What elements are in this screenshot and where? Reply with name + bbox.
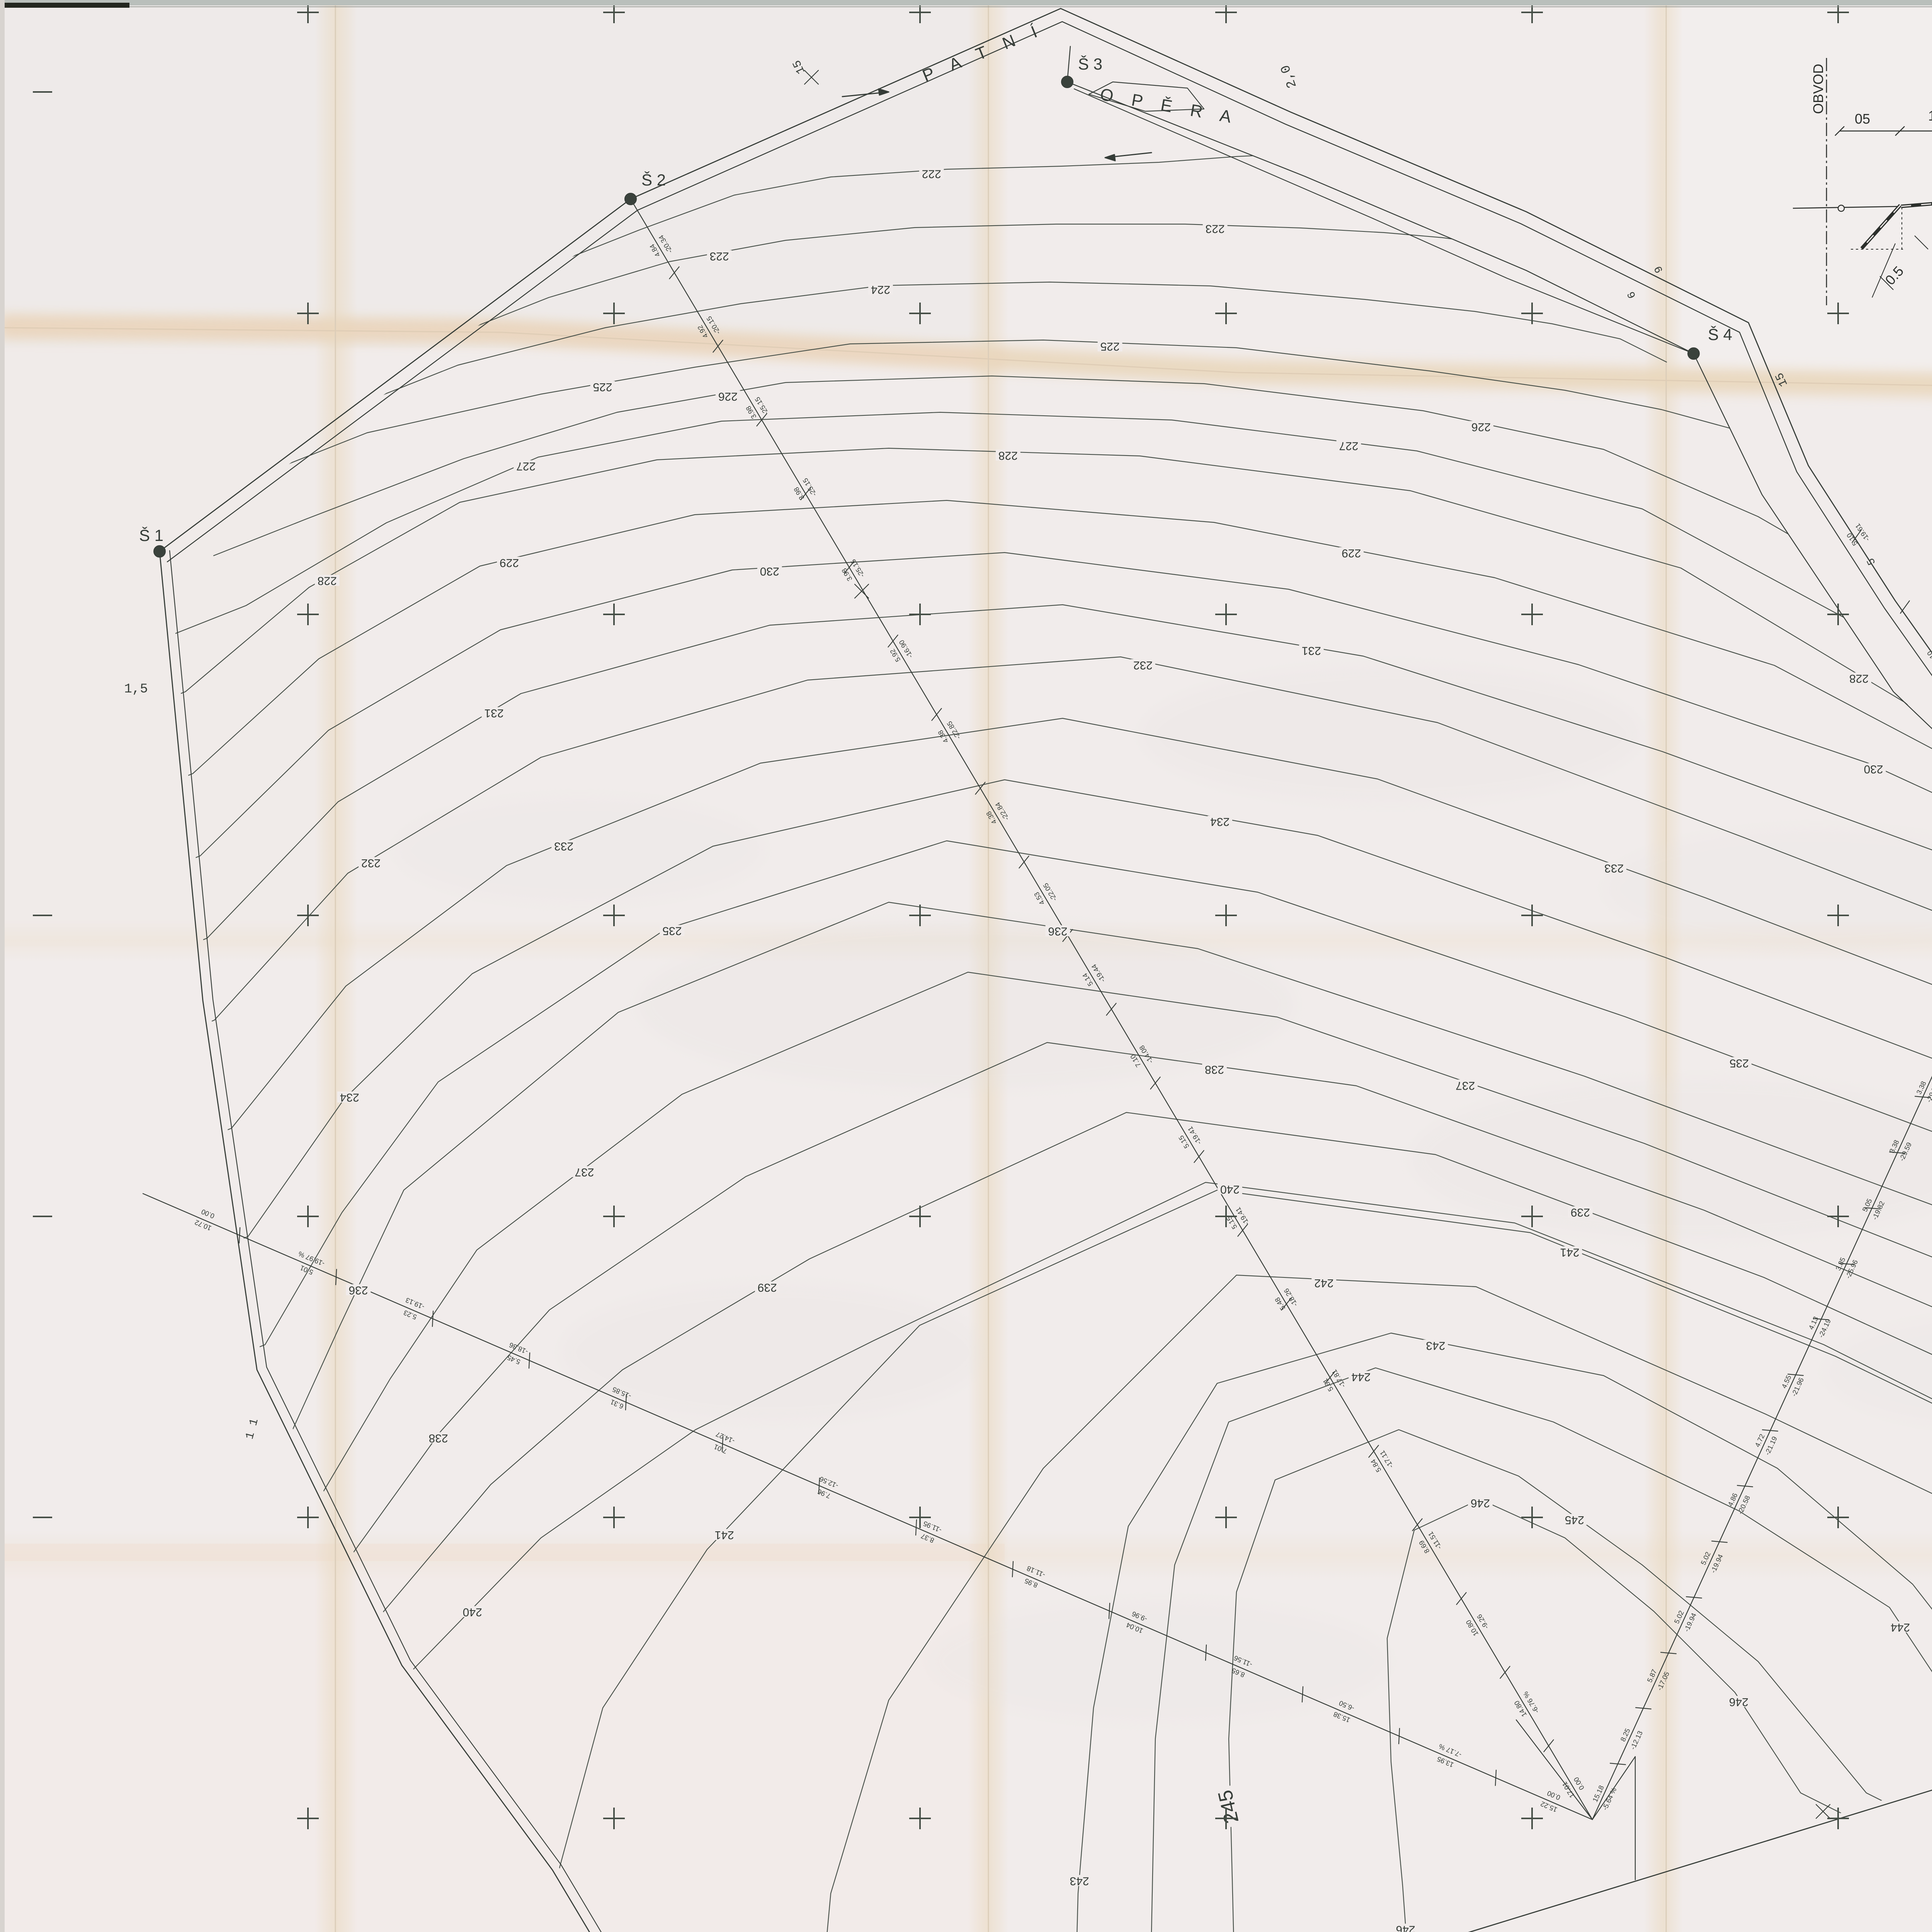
svg-text:226: 226 <box>718 390 738 403</box>
svg-text:235: 235 <box>1730 1057 1749 1070</box>
svg-text:225: 225 <box>1100 340 1120 353</box>
svg-text:227: 227 <box>516 460 536 473</box>
svg-text:235: 235 <box>662 925 682 937</box>
svg-text:231: 231 <box>484 707 503 719</box>
svg-text:239: 239 <box>758 1281 777 1294</box>
svg-text:238: 238 <box>429 1432 448 1445</box>
svg-text:Š 2: Š 2 <box>641 171 666 189</box>
svg-text:230: 230 <box>760 565 779 578</box>
svg-text:237: 237 <box>575 1166 594 1179</box>
svg-text:228: 228 <box>1849 672 1869 685</box>
svg-text:228: 228 <box>998 449 1018 462</box>
svg-text:243: 243 <box>1426 1339 1445 1352</box>
svg-text:226: 226 <box>1471 420 1491 433</box>
svg-text:Š 4: Š 4 <box>1708 325 1732 344</box>
svg-text:1,5: 1,5 <box>124 682 148 697</box>
svg-text:234: 234 <box>1210 815 1230 828</box>
svg-text:232: 232 <box>1133 659 1153 672</box>
svg-text:246: 246 <box>1471 1497 1490 1509</box>
svg-text:236: 236 <box>349 1284 368 1297</box>
svg-text:225: 225 <box>593 381 612 393</box>
svg-text:242: 242 <box>1314 1277 1333 1289</box>
svg-text:234: 234 <box>340 1091 359 1104</box>
svg-text:228: 228 <box>318 575 337 587</box>
svg-text:241: 241 <box>1560 1246 1579 1259</box>
svg-text:223: 223 <box>1206 223 1225 235</box>
svg-text:232: 232 <box>361 857 381 869</box>
svg-text:231: 231 <box>1302 645 1321 657</box>
svg-text:239: 239 <box>1571 1206 1590 1219</box>
svg-text:Š 3: Š 3 <box>1078 55 1102 73</box>
svg-text:222: 222 <box>922 168 941 180</box>
svg-text:227: 227 <box>1339 439 1358 452</box>
svg-text:246: 246 <box>1729 1696 1748 1708</box>
svg-text:230: 230 <box>1864 763 1883 776</box>
svg-text:1,0: 1,0 <box>1928 108 1932 124</box>
svg-text:240: 240 <box>463 1606 482 1619</box>
svg-text:223: 223 <box>710 250 729 262</box>
svg-text:243: 243 <box>1070 1874 1089 1887</box>
svg-text:237: 237 <box>1456 1079 1475 1092</box>
svg-text:229: 229 <box>500 556 519 569</box>
svg-text:224: 224 <box>871 283 890 296</box>
svg-text:236: 236 <box>1048 925 1067 938</box>
svg-text:244: 244 <box>1351 1371 1371 1383</box>
svg-text:233: 233 <box>554 840 573 852</box>
svg-text:OBVOD: OBVOD <box>1810 64 1826 114</box>
svg-text:Š 1: Š 1 <box>139 526 163 544</box>
svg-text:238: 238 <box>1205 1063 1224 1076</box>
svg-text:240: 240 <box>1220 1183 1240 1196</box>
svg-text:245: 245 <box>1565 1514 1584 1526</box>
svg-text:229: 229 <box>1342 547 1361 560</box>
svg-text:244: 244 <box>1891 1621 1910 1634</box>
svg-text:233: 233 <box>1604 862 1624 875</box>
svg-text:241: 241 <box>715 1529 734 1541</box>
svg-text:246: 246 <box>1396 1923 1415 1932</box>
svg-text:05: 05 <box>1855 111 1870 127</box>
